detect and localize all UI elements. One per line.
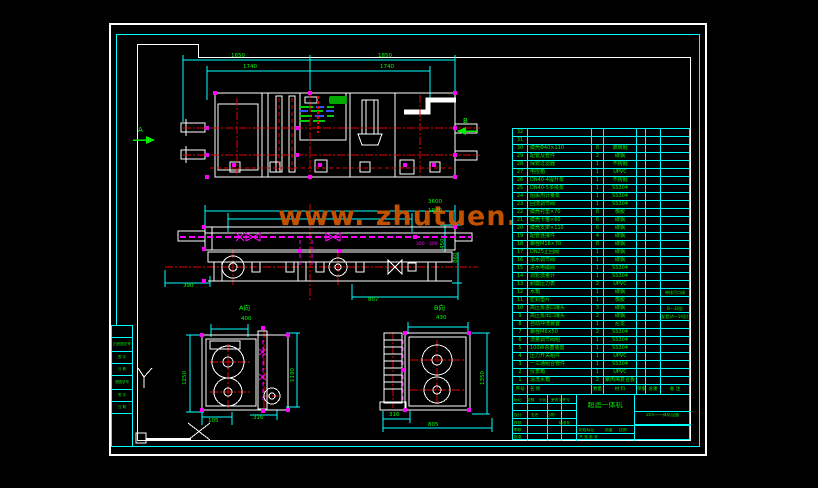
bom-cell	[661, 337, 689, 344]
bom-cell: 1	[592, 177, 604, 184]
nameplate-text-block	[299, 106, 334, 122]
bom-row: 27电控箱1UPVC	[513, 169, 689, 177]
margin-strip-row: 日 期	[112, 402, 132, 414]
bom-row: 20膜壳支架×1106碳钢	[513, 225, 689, 233]
bom-cell: 32	[513, 129, 528, 136]
margin-strip: 旧底图总号签 字日 期底图总号签 字日 期	[111, 325, 133, 447]
bom-cell	[646, 265, 661, 272]
bom-cell: 自动冲洗装置	[528, 321, 592, 328]
bom-cell	[637, 193, 646, 200]
bom-cell: 1	[592, 321, 604, 328]
bom-cell	[661, 193, 689, 200]
bom-cell	[646, 369, 661, 376]
bom-cell: 膜壳卡箍×60	[528, 217, 592, 224]
bom-cell	[646, 345, 661, 352]
bom-cell	[646, 153, 661, 160]
bom-cell: 1	[592, 297, 604, 304]
bom-row: 31	[513, 137, 689, 145]
bom-cell: 清洗水箱	[528, 377, 592, 384]
bom-cell	[637, 161, 646, 168]
bom-cell	[661, 329, 689, 336]
cross-mark	[188, 423, 210, 440]
dim-front-300b: 300	[429, 243, 438, 248]
bom-row: 28保安过滤器1不锈钢	[513, 161, 689, 169]
bom-row: 25DN40-5多级泵1SS304	[513, 185, 689, 193]
bom-cell: 1	[592, 361, 604, 368]
section-view-a	[202, 331, 288, 410]
bom-cell: 玻璃钢	[604, 145, 637, 152]
bom-cell	[592, 137, 604, 144]
bom-row: 22膜壳衬垫×708橡胶	[513, 209, 689, 217]
title-block-label: 处数	[527, 398, 535, 402]
bom-cell: SS304	[604, 345, 637, 352]
bom-table: 323130膜壳Φ40×1108玻璃钢29配管及管件2碳钢28保安过滤器1不锈钢…	[512, 128, 690, 396]
bom-cell	[637, 313, 646, 320]
title-block-divider	[513, 410, 576, 411]
dim-b-430: 430	[436, 316, 447, 322]
bom-row: 29配管及管件2碳钢	[513, 153, 689, 161]
bom-cell: 28	[513, 161, 528, 168]
title-block-divider	[634, 395, 635, 441]
view-a-label: A向	[239, 305, 250, 312]
bom-cell: 1	[592, 345, 604, 352]
margin-strip-row: 日 期	[112, 364, 132, 376]
dim-front-3600: 3600	[428, 200, 442, 206]
title-block-label: 设计	[514, 413, 522, 417]
bom-cell: 高压泵进口接头	[528, 305, 592, 312]
bom-cell: 20	[513, 225, 528, 232]
bom-cell	[646, 193, 661, 200]
bom-cell	[646, 209, 661, 216]
bom-cell	[637, 225, 646, 232]
bom-row: 32	[513, 129, 689, 137]
title-block-divider	[513, 433, 576, 434]
dim-front-450: 450	[441, 239, 447, 250]
bom-cell: 6	[592, 217, 604, 224]
bom-cell: 浓水调节阀	[528, 257, 592, 264]
bom-cell	[637, 377, 646, 384]
margin-strip-row: 签 字	[112, 352, 132, 364]
bom-cell: 碳钢	[604, 153, 637, 160]
bom-row: 8自动冲洗装置1尼龙	[513, 321, 689, 329]
bom-cell	[661, 185, 689, 192]
bom-cell	[637, 241, 646, 248]
bom-cell: 碳钢	[604, 249, 637, 256]
title-block-label: 批准	[514, 435, 522, 439]
bom-cell	[661, 321, 689, 328]
bom-cell: 耐震压力表	[528, 281, 592, 288]
bom-cell: 3	[592, 305, 604, 312]
bom-row: 19配管连接件4碳钢	[513, 233, 689, 241]
bom-cell	[637, 153, 646, 160]
dim-a-316: 316	[253, 416, 264, 422]
bom-cell: 4	[592, 233, 604, 240]
bom-cell	[592, 129, 604, 136]
dim-a-105: 105	[208, 419, 219, 425]
bom-cell	[646, 353, 661, 360]
bom-cell: SS304	[604, 361, 637, 368]
bom-cell	[646, 321, 661, 328]
bom-cell	[661, 369, 689, 376]
dim-a-400: 400	[241, 317, 252, 323]
title-block-label: 审核	[514, 428, 522, 432]
bom-cell	[637, 281, 646, 288]
bom-cell: 23	[513, 201, 528, 208]
title-block-divider	[634, 424, 691, 425]
bom-row: 17DN25止回阀1碳钢	[513, 249, 689, 257]
dim-top-inner-left: 1740	[243, 65, 257, 71]
bom-cell	[637, 137, 646, 144]
bom-row: 5100W杀菌装置1SS304	[513, 345, 689, 353]
bom-cell	[637, 169, 646, 176]
bom-cell	[646, 377, 661, 384]
bom-cell: 配套(A—16型)	[661, 313, 689, 320]
bom-cell: SS304	[604, 329, 637, 336]
bom-cell: 碳钢	[604, 289, 637, 296]
bom-cell: 碳钢	[604, 257, 637, 264]
bom-cell: 碳钢	[604, 305, 637, 312]
dim-front-300a: 300	[416, 243, 425, 248]
bom-cell: 1	[592, 369, 604, 376]
bom-cell: 31	[513, 137, 528, 144]
bom-cell: 19	[513, 233, 528, 240]
bom-cell: 11	[513, 297, 528, 304]
bom-cell: 1	[592, 169, 604, 176]
bom-row: 18螺栓M16×708碳钢	[513, 241, 689, 249]
bom-cell	[646, 305, 661, 312]
bom-cell: 7	[513, 329, 528, 336]
bom-cell	[646, 289, 661, 296]
bom-cell: 5	[513, 345, 528, 352]
bom-row: 2仪表箱1UPVC	[513, 369, 689, 377]
bom-cell: 2	[513, 369, 528, 376]
bom-row: 10高压泵进口接头3碳钢B—16型	[513, 305, 689, 313]
bom-cell: 仪表箱	[528, 369, 592, 376]
bom-cell	[646, 217, 661, 224]
bom-cell: 26	[513, 177, 528, 184]
dim-b-805: 805	[428, 423, 439, 429]
bom-row: 14涡轮流量计1SS304	[513, 273, 689, 281]
bom-cell: 1	[592, 265, 604, 272]
bom-cell: 2	[592, 281, 604, 288]
bom-cell	[661, 297, 689, 304]
bom-cell	[637, 321, 646, 328]
bom-row: 24阻垢剂计量泵1SS304	[513, 193, 689, 201]
dim-a-1190: 1190	[291, 368, 297, 382]
dim-top-outer-left: 1650	[231, 54, 245, 60]
title-block-label: 标记	[514, 398, 522, 402]
bom-cell	[661, 265, 689, 272]
dim-top-outer-right: 1850	[378, 54, 392, 60]
title-block-divider	[576, 433, 634, 434]
bom-row: 12水箱1碳钢带排污口阀	[513, 289, 689, 297]
bom-cell: 2	[592, 313, 604, 320]
bom-row: 6流量调节阀组1SS304	[513, 337, 689, 345]
bom-cell	[646, 185, 661, 192]
title-block-label: 校核	[514, 421, 522, 425]
bom-cell	[637, 305, 646, 312]
bom-cell: SS304	[604, 201, 637, 208]
title-block-label: 更改文件号	[551, 398, 570, 402]
bom-cell	[646, 145, 661, 152]
bom-cell	[637, 265, 646, 272]
bom-cell: 高压泵出口接头	[528, 313, 592, 320]
bom-row: 4压力开关组件1UPVC	[513, 353, 689, 361]
bom-cell	[646, 249, 661, 256]
bom-cell	[637, 353, 646, 360]
title-block-label: 日期	[547, 413, 555, 417]
bom-cell: 24	[513, 193, 528, 200]
bom-cell	[646, 297, 661, 304]
bom-cell	[637, 273, 646, 280]
dim-b-316: 316	[389, 413, 400, 419]
bom-cell	[646, 137, 661, 144]
bom-cell: 1	[513, 377, 528, 384]
bom-cell: 17	[513, 249, 528, 256]
bom-cell: 橡胶	[604, 297, 637, 304]
drawing-title: 超滤一体机	[577, 402, 633, 410]
bom-row: 11密封垫片1橡胶	[513, 297, 689, 305]
bom-cell: 膜壳支架×110	[528, 225, 592, 232]
bom-cell	[661, 137, 689, 144]
bom-cell	[661, 209, 689, 216]
bom-cell	[646, 257, 661, 264]
bom-cell: SS304	[604, 273, 637, 280]
title-block-label: 签名	[531, 413, 539, 417]
bom-cell	[661, 361, 689, 368]
bom-cell	[646, 225, 661, 232]
bom-cell: 压力开关组件	[528, 353, 592, 360]
bom-cell	[661, 281, 689, 288]
bom-cell: B—16型	[661, 305, 689, 312]
bom-cell	[661, 249, 689, 256]
bom-cell	[661, 129, 689, 136]
bom-cell	[637, 257, 646, 264]
bom-cell: 3	[513, 361, 528, 368]
bom-cell: UPVC	[604, 169, 637, 176]
title-block-label: 分区	[539, 398, 547, 402]
bom-cell: 不锈钢	[604, 177, 637, 184]
bom-cell	[646, 129, 661, 136]
margin-strip-row: 旧底图总号	[112, 338, 132, 352]
control-panel-indicator	[329, 96, 347, 104]
bom-cell	[637, 129, 646, 136]
title-block: 超滤一体机5t/h—一体化设备标记处数分区更改文件号设计签名日期校核标准化审核阶…	[512, 394, 690, 440]
bom-cell	[661, 225, 689, 232]
title-block-label: 标准化	[559, 421, 570, 425]
title-block-label: 质量	[605, 428, 613, 432]
bom-cell	[661, 217, 689, 224]
bom-cell	[637, 329, 646, 336]
bom-cell	[661, 353, 689, 360]
dim-top-inner-right: 1740	[380, 65, 394, 71]
bom-cell	[604, 129, 637, 136]
bom-cell	[661, 201, 689, 208]
y-osnap-mark	[138, 368, 152, 388]
margin-strip-row: 底图总号	[112, 376, 132, 390]
title-block-label: 阶段标记	[579, 428, 594, 432]
bom-cell: 2	[592, 329, 604, 336]
front-view	[178, 227, 472, 281]
bom-cell: 橡胶	[604, 209, 637, 216]
bom-cell: 1	[592, 161, 604, 168]
bom-cell	[646, 201, 661, 208]
bom-cell: 碳钢	[604, 241, 637, 248]
bom-cell	[637, 361, 646, 368]
bom-cell: 配管连接件	[528, 233, 592, 240]
cursor-artifacts	[136, 368, 210, 443]
bom-cell: DN40-4提升泵	[528, 177, 592, 184]
bom-cell: 14	[513, 273, 528, 280]
bom-cell: 聚丙烯复合板	[604, 377, 637, 384]
bom-cell	[637, 297, 646, 304]
bom-cell	[646, 161, 661, 168]
bom-cell: 回流调节阀	[528, 201, 592, 208]
bom-cell: 1	[592, 289, 604, 296]
bom-cell: 尼龙	[604, 321, 637, 328]
bom-cell: SS304	[604, 185, 637, 192]
margin-strip-row	[112, 326, 132, 338]
view-b-label: B向	[434, 305, 445, 312]
dim-front-390: 390	[183, 284, 194, 290]
cad-canvas: www. zhutuen. com 1650185017401740AB3600…	[0, 0, 818, 488]
dim-front-860: 860	[454, 253, 460, 264]
bom-cell: 1	[592, 201, 604, 208]
dim-front-1900: 1900	[428, 209, 442, 215]
bom-cell	[646, 177, 661, 184]
bom-cell: DN25止回阀	[528, 249, 592, 256]
bom-cell: SS304	[604, 337, 637, 344]
section-marker-b: B	[463, 118, 468, 125]
bom-row: 13耐震压力表2UPVC	[513, 281, 689, 289]
margin-strip-row: 签 字	[112, 390, 132, 402]
bom-cell	[637, 201, 646, 208]
bom-cell	[661, 145, 689, 152]
bom-cell: 1	[592, 353, 604, 360]
bom-cell	[646, 281, 661, 288]
bom-cell: 25	[513, 185, 528, 192]
bom-cell: DN40-5多级泵	[528, 185, 592, 192]
dim-b-1350: 1350	[481, 371, 487, 385]
bom-cell	[637, 209, 646, 216]
title-block-divider	[547, 395, 548, 441]
title-block-divider	[634, 411, 691, 412]
bom-cell	[637, 345, 646, 352]
bom-cell: UPVC	[604, 353, 637, 360]
bom-cell	[661, 377, 689, 384]
bom-cell	[646, 241, 661, 248]
bom-cell: 螺栓M16×70	[528, 241, 592, 248]
bom-cell: 13	[513, 281, 528, 288]
bom-cell	[661, 233, 689, 240]
bom-cell	[637, 249, 646, 256]
bom-cell	[528, 137, 592, 144]
bom-cell: 流量调节阀组	[528, 337, 592, 344]
bom-cell: 螺栓M6×50	[528, 329, 592, 336]
bom-cell: SS304	[604, 265, 637, 272]
bom-cell: 膜壳Φ40×110	[528, 145, 592, 152]
title-block-divider	[576, 425, 691, 426]
bom-cell: 6	[513, 337, 528, 344]
bom-cell	[646, 273, 661, 280]
bom-row: 23回流调节阀1SS304	[513, 201, 689, 209]
bom-cell: 22	[513, 209, 528, 216]
bom-cell: 15	[513, 265, 528, 272]
bom-cell: 密封垫片	[528, 297, 592, 304]
bom-cell: 阻垢剂计量泵	[528, 193, 592, 200]
bom-cell	[661, 345, 689, 352]
bom-cell: 1	[592, 257, 604, 264]
bom-cell: 不锈钢	[604, 161, 637, 168]
bom-cell: 膜壳衬垫×70	[528, 209, 592, 216]
bom-cell: UPVC	[604, 281, 637, 288]
bom-cell	[637, 185, 646, 192]
margin-strip-row	[112, 414, 132, 446]
bom-row: 9高压泵出口接头2碳钢配套(A—16型)	[513, 313, 689, 321]
bom-cell	[528, 129, 592, 136]
bom-cell: 涡轮流量计	[528, 273, 592, 280]
bom-cell	[646, 313, 661, 320]
bom-row: 15进水电磁阀1SS304	[513, 265, 689, 273]
bom-cell: 碳钢	[604, 233, 637, 240]
bom-cell: 1	[592, 273, 604, 280]
bom-cell: 8	[592, 145, 604, 152]
bom-cell: 1	[592, 249, 604, 256]
bom-cell: 碳钢	[604, 225, 637, 232]
bom-cell: 一三通组合管件	[528, 361, 592, 368]
bom-cell: 100W杀菌装置	[528, 345, 592, 352]
bom-cell	[637, 145, 646, 152]
bom-row: 30膜壳Φ40×1108玻璃钢	[513, 145, 689, 153]
bom-cell: 29	[513, 153, 528, 160]
bom-cell: 进水电磁阀	[528, 265, 592, 272]
bom-cell: 6	[592, 225, 604, 232]
bom-row: 7螺栓M6×502SS304	[513, 329, 689, 337]
bom-cell	[661, 161, 689, 168]
bom-cell	[637, 217, 646, 224]
bom-cell	[661, 177, 689, 184]
title-block-divider	[513, 403, 576, 404]
bom-cell: 9	[513, 313, 528, 320]
drawing-model: 5t/h—一体化设备	[635, 413, 690, 418]
title-block-label: 共 张 第 张	[579, 435, 598, 439]
bom-cell: 8	[592, 241, 604, 248]
bom-cell	[637, 369, 646, 376]
bom-cell: 水箱	[528, 289, 592, 296]
bom-cell: UPVC	[604, 369, 637, 376]
bom-cell: 27	[513, 169, 528, 176]
bom-cell: 碳钢	[604, 217, 637, 224]
bom-cell	[646, 233, 661, 240]
bom-cell: SS304	[604, 193, 637, 200]
bom-cell	[661, 241, 689, 248]
bom-cell: 8	[513, 321, 528, 328]
bom-cell: 电控箱	[528, 169, 592, 176]
dim-front-807: 807	[368, 298, 379, 304]
bom-row: 21膜壳卡箍×606碳钢	[513, 217, 689, 225]
bom-row: 26DN40-4提升泵1不锈钢	[513, 177, 689, 185]
bom-cell: 12	[513, 289, 528, 296]
bom-row: 1清洗水箱2聚丙烯复合板	[513, 377, 689, 385]
section-arrows	[133, 127, 478, 144]
bom-cell: 1	[592, 185, 604, 192]
bom-cell: 10	[513, 305, 528, 312]
bom-cell: 2	[592, 377, 604, 384]
bom-cell	[646, 169, 661, 176]
bom-cell: 碳钢	[604, 313, 637, 320]
bom-cell: 21	[513, 217, 528, 224]
bom-cell	[637, 337, 646, 344]
